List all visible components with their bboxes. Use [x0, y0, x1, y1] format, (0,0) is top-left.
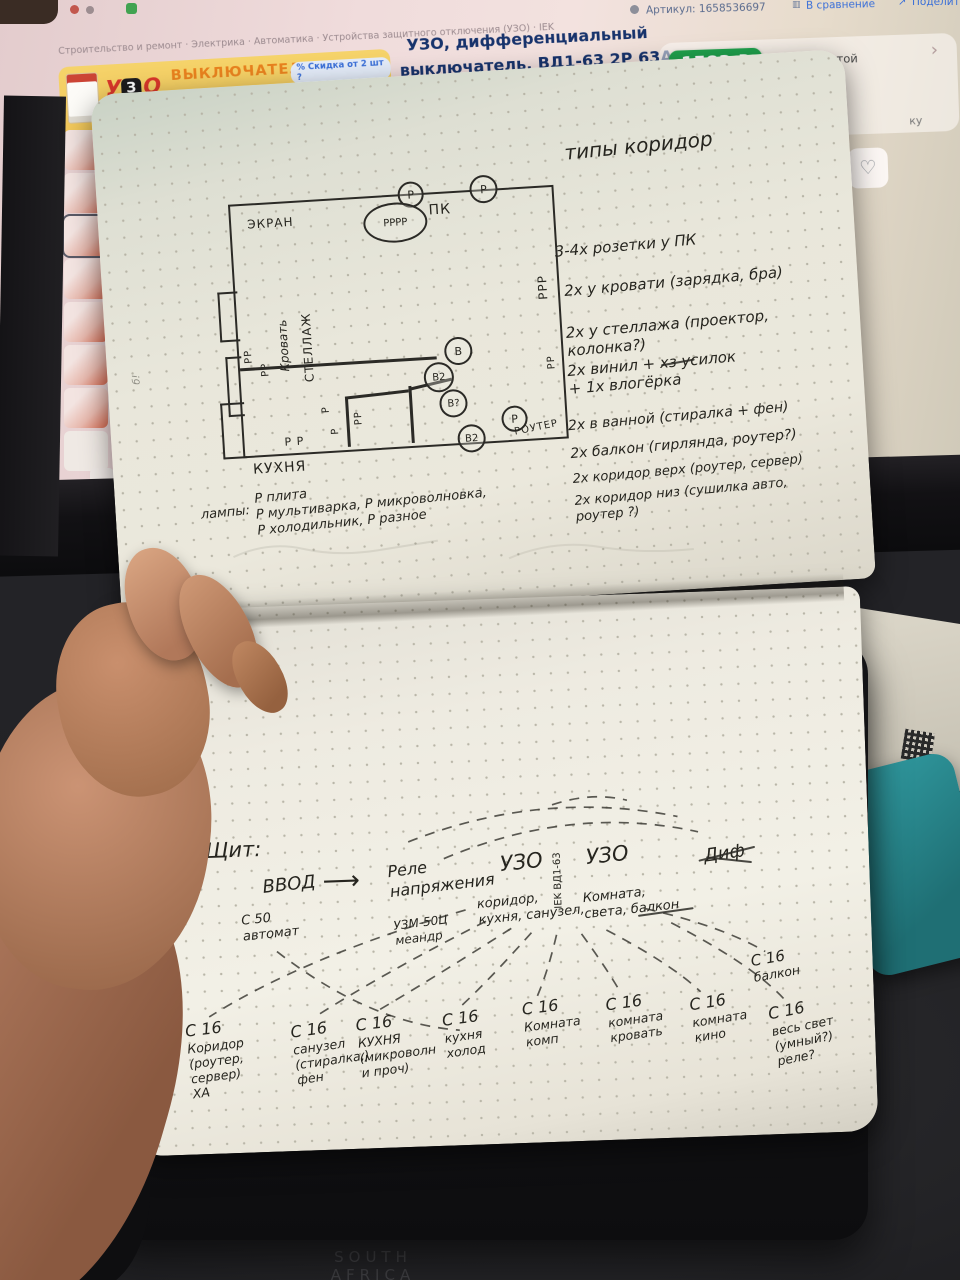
thumbnail[interactable]: [64, 388, 108, 428]
uzo-model: IEK ВД1-63: [552, 852, 566, 909]
thumbnail[interactable]: [64, 431, 108, 471]
breaker-item: С 16 КУХНЯ (микроволн и проч): [355, 1005, 452, 1081]
monitor-edge: [0, 95, 66, 556]
thumbnail[interactable]: [64, 302, 108, 342]
article-number: Артикул: 1658536697: [646, 1, 766, 16]
share-link[interactable]: Поделиться: [912, 0, 960, 8]
arrow-icon: ⟶: [322, 866, 360, 899]
uzo1-label: УЗО: [499, 848, 544, 878]
wishlist-button[interactable]: ♡: [847, 147, 888, 188]
chevron-icon[interactable]: ›: [930, 39, 938, 60]
heart-icon: ♡: [859, 157, 877, 180]
partial-text: ку: [909, 114, 923, 127]
compare-icon[interactable]: ▥: [792, 0, 802, 10]
store-logo-icon[interactable]: [126, 3, 137, 14]
hand: [0, 530, 320, 1280]
thumbnail[interactable]: [64, 345, 108, 385]
browser-icon[interactable]: [86, 6, 94, 14]
article-icon: [630, 5, 639, 14]
compare-link[interactable]: В сравнение: [806, 0, 875, 12]
photo-scene: ANGOLA ZAMBIA NAMIBIA BOTSWANA ZIMBABWE …: [0, 0, 960, 1280]
background-object: [0, 0, 58, 24]
uzo2-label: УЗО: [585, 841, 630, 871]
share-icon[interactable]: ↗: [898, 0, 906, 8]
breaker-item: С 16 Комната комп: [521, 990, 610, 1050]
browser-icon[interactable]: [70, 5, 79, 14]
